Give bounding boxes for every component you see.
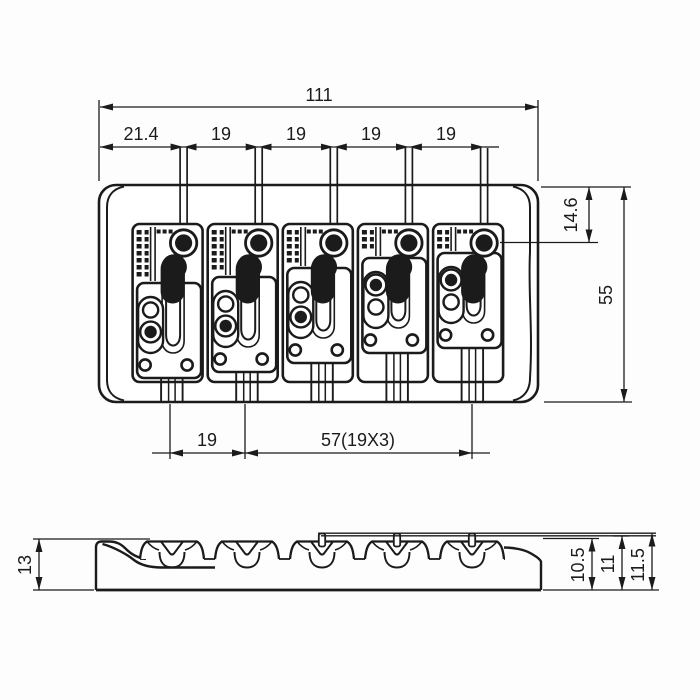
- dim-string-spacing-label: 19: [436, 124, 456, 144]
- saddle-hump: [215, 542, 279, 568]
- bridge-dimension-drawing: 111 21.4 19 19 19 19 14.6 55 19 57(19X3): [0, 0, 700, 700]
- dim-first-spacing-label: 21.4: [123, 124, 158, 144]
- side-right-end: [504, 548, 541, 591]
- dim-overall-width-label: 111: [305, 85, 332, 105]
- string-side-line: [318, 533, 656, 536]
- dim-saddle-height-label: 10.5: [568, 547, 588, 582]
- dim-string-height-label: 11: [598, 555, 618, 574]
- dim-bottom-span-label: 57(19X3): [321, 430, 395, 450]
- dim-hole-offset-label: 14.6: [561, 197, 581, 232]
- saddle-unit: [283, 224, 353, 401]
- dim-overall-height-label: 11.5: [628, 548, 648, 582]
- side-left-end: [96, 542, 146, 591]
- dim-bottom-first-label: 19: [197, 430, 217, 450]
- saddle-units: [133, 224, 504, 401]
- saddle-unit: [208, 224, 278, 401]
- saddle-unit: [433, 224, 503, 401]
- top-view: [99, 148, 538, 402]
- dim-string-spacing-label: 19: [361, 124, 381, 144]
- saddle-hump: [140, 542, 204, 568]
- saddle-unit: [358, 224, 428, 401]
- saddle-unit: [133, 224, 203, 401]
- dim-string-spacing-label: 19: [286, 124, 306, 144]
- dim-overall-depth-label: 55: [596, 285, 616, 305]
- dim-string-spacing-label: 19: [211, 124, 231, 144]
- dim-height-left-label: 13: [15, 555, 35, 575]
- technical-drawing: 111 21.4 19 19 19 19 14.6 55 19 57(19X3): [0, 0, 700, 700]
